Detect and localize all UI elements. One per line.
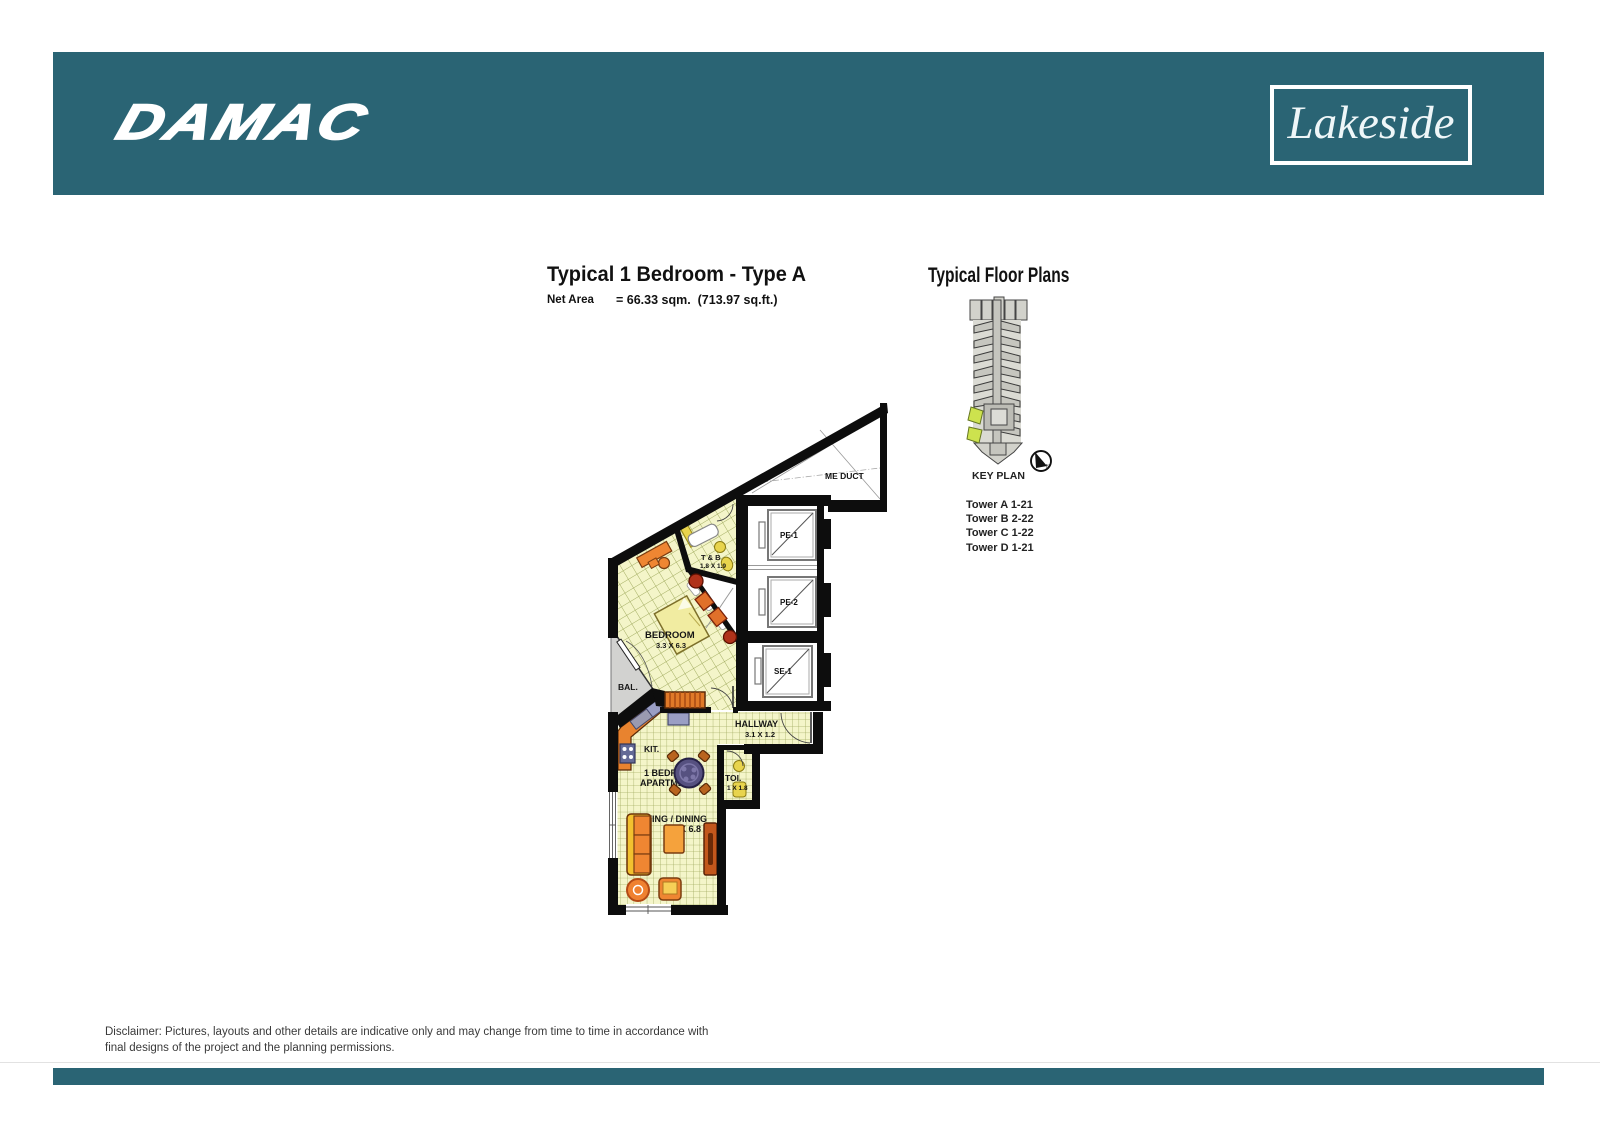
svg-text:1 X 1.8: 1 X 1.8: [727, 785, 748, 792]
svg-text:1.8 X 1.9: 1.8 X 1.9: [700, 563, 726, 570]
svg-text:DAMAC: DAMAC: [110, 95, 375, 150]
svg-text:N: N: [1046, 464, 1050, 470]
svg-text:T & B: T & B: [701, 553, 721, 562]
svg-text:PE-2: PE-2: [780, 598, 798, 607]
svg-text:SE-1: SE-1: [774, 667, 792, 676]
svg-text:3.1 X 1.2: 3.1 X 1.2: [745, 730, 775, 739]
svg-text:ME DUCT: ME DUCT: [825, 471, 865, 481]
svg-text:KIT.: KIT.: [644, 744, 659, 754]
svg-text:BEDROOM: BEDROOM: [645, 630, 695, 641]
svg-text:HALLWAY: HALLWAY: [735, 719, 778, 729]
svg-text:TOI.: TOI.: [725, 773, 741, 783]
svg-text:PE-1: PE-1: [780, 531, 798, 540]
svg-text:3.3 X 6.3: 3.3 X 6.3: [656, 641, 686, 650]
svg-text:BAL.: BAL.: [618, 682, 638, 692]
